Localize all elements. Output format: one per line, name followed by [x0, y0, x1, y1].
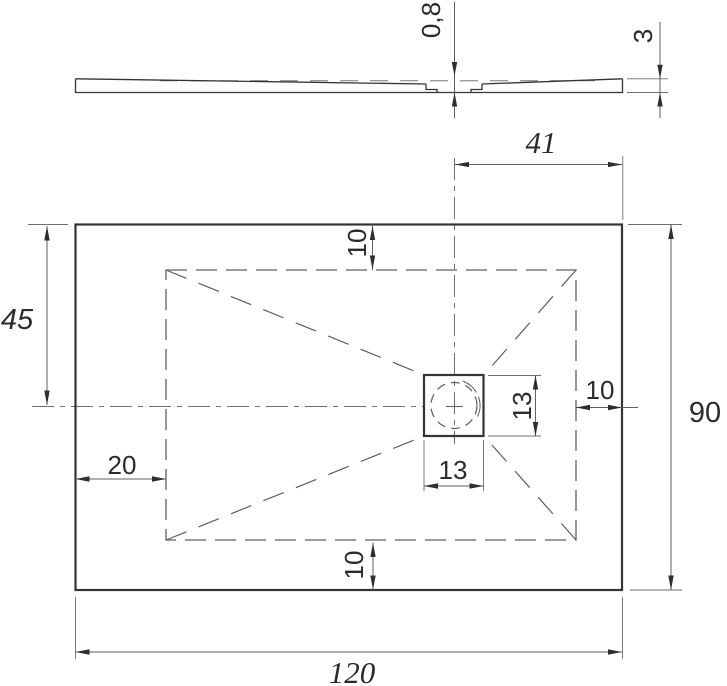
dim-overall-width: 120	[76, 597, 623, 686]
dim-label-inset-left: 20	[108, 450, 137, 480]
dim-label-overall-height: 90	[689, 397, 721, 429]
arrowhead	[370, 543, 375, 557]
slope-diagonal-bottom-right	[484, 436, 576, 540]
arrowhead	[576, 405, 590, 410]
dim-drain-width: 13	[424, 440, 484, 491]
arrowhead	[608, 162, 622, 167]
arrowhead	[44, 391, 49, 406]
arrowhead	[533, 422, 538, 436]
dim-label-drain-height: 13	[507, 392, 537, 421]
dim-label-recess-depth: 0,8	[416, 2, 446, 38]
dim-inset-left: 20	[76, 450, 167, 482]
drain-arc-detail	[463, 381, 477, 392]
arrowhead	[424, 483, 438, 488]
profile-top-left-slope	[76, 79, 427, 84]
dim-label-inset-bottom: 10	[339, 551, 369, 580]
drain-arc-detail	[478, 397, 480, 417]
dim-label-drain-width: 13	[439, 455, 468, 485]
dim-recess-depth: 0,8	[416, 2, 457, 118]
slope-diagonal-top-left	[166, 270, 424, 375]
arrowhead	[152, 476, 166, 481]
dim-label-inset-top: 10	[342, 229, 372, 258]
dim-label-overall-width: 120	[329, 655, 376, 686]
arrowhead	[668, 576, 673, 591]
arrowhead	[455, 162, 469, 167]
dim-edge-height: 3	[627, 22, 668, 118]
arrowhead	[608, 649, 622, 654]
technical-drawing-page: 0,8 3	[0, 0, 727, 686]
dim-drain-offset-right: 41	[455, 125, 623, 220]
arrowhead	[76, 649, 90, 654]
shower-tray-drawing: 0,8 3	[0, 0, 727, 686]
arrowhead	[657, 93, 662, 107]
dim-label-drain-offset-right: 41	[526, 125, 557, 160]
dim-inset-top: 10	[342, 225, 375, 270]
arrowhead	[668, 225, 673, 240]
profile-drain-notch-left	[426, 84, 437, 93]
dim-overall-height: 90	[628, 225, 721, 591]
profile-drain-notch-right	[471, 84, 482, 93]
dim-label-inset-right: 10	[586, 375, 615, 405]
tray-outline	[76, 225, 623, 591]
arrowhead	[608, 405, 622, 410]
dim-inset-right: 10	[576, 375, 638, 410]
arrowhead	[452, 93, 457, 107]
dim-drain-height: 13	[488, 376, 541, 437]
plan-view: 41 45 10 10 10	[1, 125, 721, 686]
dim-label-edge-height: 3	[628, 29, 658, 43]
slope-diagonal-bottom-left	[166, 436, 424, 540]
drain-square	[424, 375, 484, 436]
dim-center-from-top: 45	[1, 225, 68, 406]
arrowhead	[76, 476, 90, 481]
profile-view: 0,8 3	[76, 2, 669, 118]
arrowhead	[533, 376, 538, 390]
arrowhead	[44, 226, 49, 241]
arrowhead	[470, 483, 484, 488]
arrowhead	[452, 62, 457, 76]
profile-top-right-slope	[482, 79, 623, 84]
arrowhead	[370, 576, 375, 590]
dim-label-center-from-top: 45	[1, 304, 34, 336]
dim-inset-bottom: 10	[339, 543, 376, 591]
arrowhead	[657, 65, 662, 79]
slope-diagonal-top-right	[484, 270, 576, 375]
